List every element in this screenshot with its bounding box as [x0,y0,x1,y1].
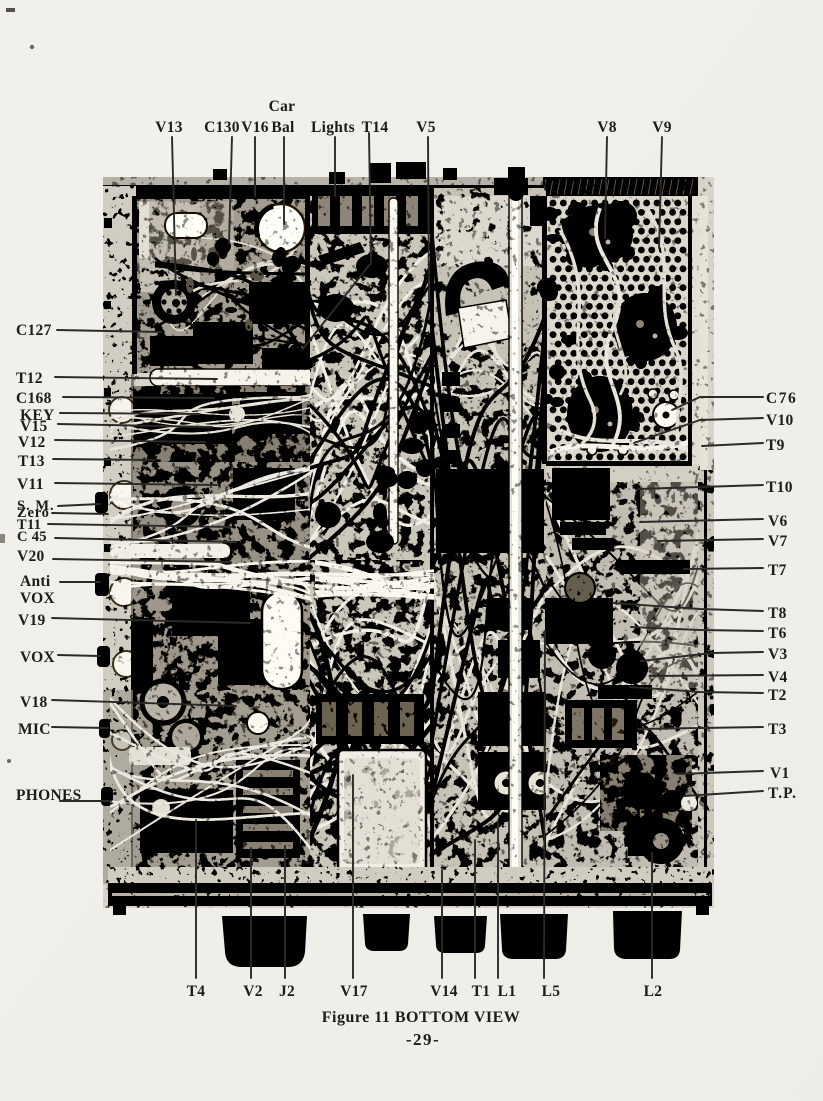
svg-text:V12: V12 [18,434,46,451]
svg-text:-29-: -29- [406,1030,440,1049]
svg-text:V17: V17 [340,983,368,1000]
svg-text:Bal: Bal [271,119,295,136]
svg-text:V13: V13 [155,119,183,136]
svg-text:L5: L5 [542,983,561,1000]
svg-text:T.P.: T.P. [768,785,797,802]
svg-text:Car: Car [269,98,296,115]
svg-text:V7: V7 [768,533,788,550]
svg-text:V14: V14 [430,983,458,1000]
svg-text:V5: V5 [416,119,436,136]
svg-text:VOX: VOX [20,590,56,607]
svg-text:V10: V10 [766,412,794,429]
svg-text:T13: T13 [18,453,45,470]
svg-text:MIC: MIC [18,721,51,738]
svg-text:T2: T2 [768,687,787,704]
svg-text:V18: V18 [20,694,48,711]
svg-text:T1: T1 [472,983,491,1000]
svg-text:C 45: C 45 [17,529,47,545]
svg-text:L1: L1 [498,983,517,1000]
svg-text:T12: T12 [16,370,43,387]
svg-text:VOX: VOX [20,649,56,666]
svg-text:T8: T8 [768,605,787,622]
svg-text:V11: V11 [17,476,44,493]
svg-text:V9: V9 [652,119,672,136]
svg-text:C76: C76 [766,390,797,407]
svg-text:V2: V2 [243,983,263,1000]
svg-text:C130: C130 [204,119,240,136]
svg-text:L2: L2 [644,983,663,1000]
svg-text:V16: V16 [241,119,269,136]
svg-text:V20: V20 [17,548,45,565]
svg-text:V4: V4 [768,669,788,686]
svg-text:V1: V1 [770,765,790,782]
svg-text:T10: T10 [766,479,793,496]
svg-text:V15: V15 [20,418,48,435]
svg-text:T7: T7 [768,562,787,579]
svg-text:J2: J2 [279,983,295,1000]
svg-text:V3: V3 [768,646,788,663]
svg-text:T14: T14 [362,119,389,136]
svg-text:T9: T9 [766,437,785,454]
svg-text:V8: V8 [597,119,617,136]
svg-text:Figure 11 BOTTOM VIEW: Figure 11 BOTTOM VIEW [322,1009,521,1026]
svg-text:T4: T4 [187,983,206,1000]
svg-text:V6: V6 [768,513,788,530]
svg-text:T3: T3 [768,721,787,738]
svg-text:C168: C168 [16,390,52,407]
svg-text:PHONES: PHONES [16,787,82,804]
svg-text:V19: V19 [18,612,46,629]
svg-text:C127: C127 [16,322,52,339]
svg-text:Anti: Anti [20,573,51,590]
svg-text:T6: T6 [768,625,787,642]
svg-text:Lights: Lights [311,119,355,136]
